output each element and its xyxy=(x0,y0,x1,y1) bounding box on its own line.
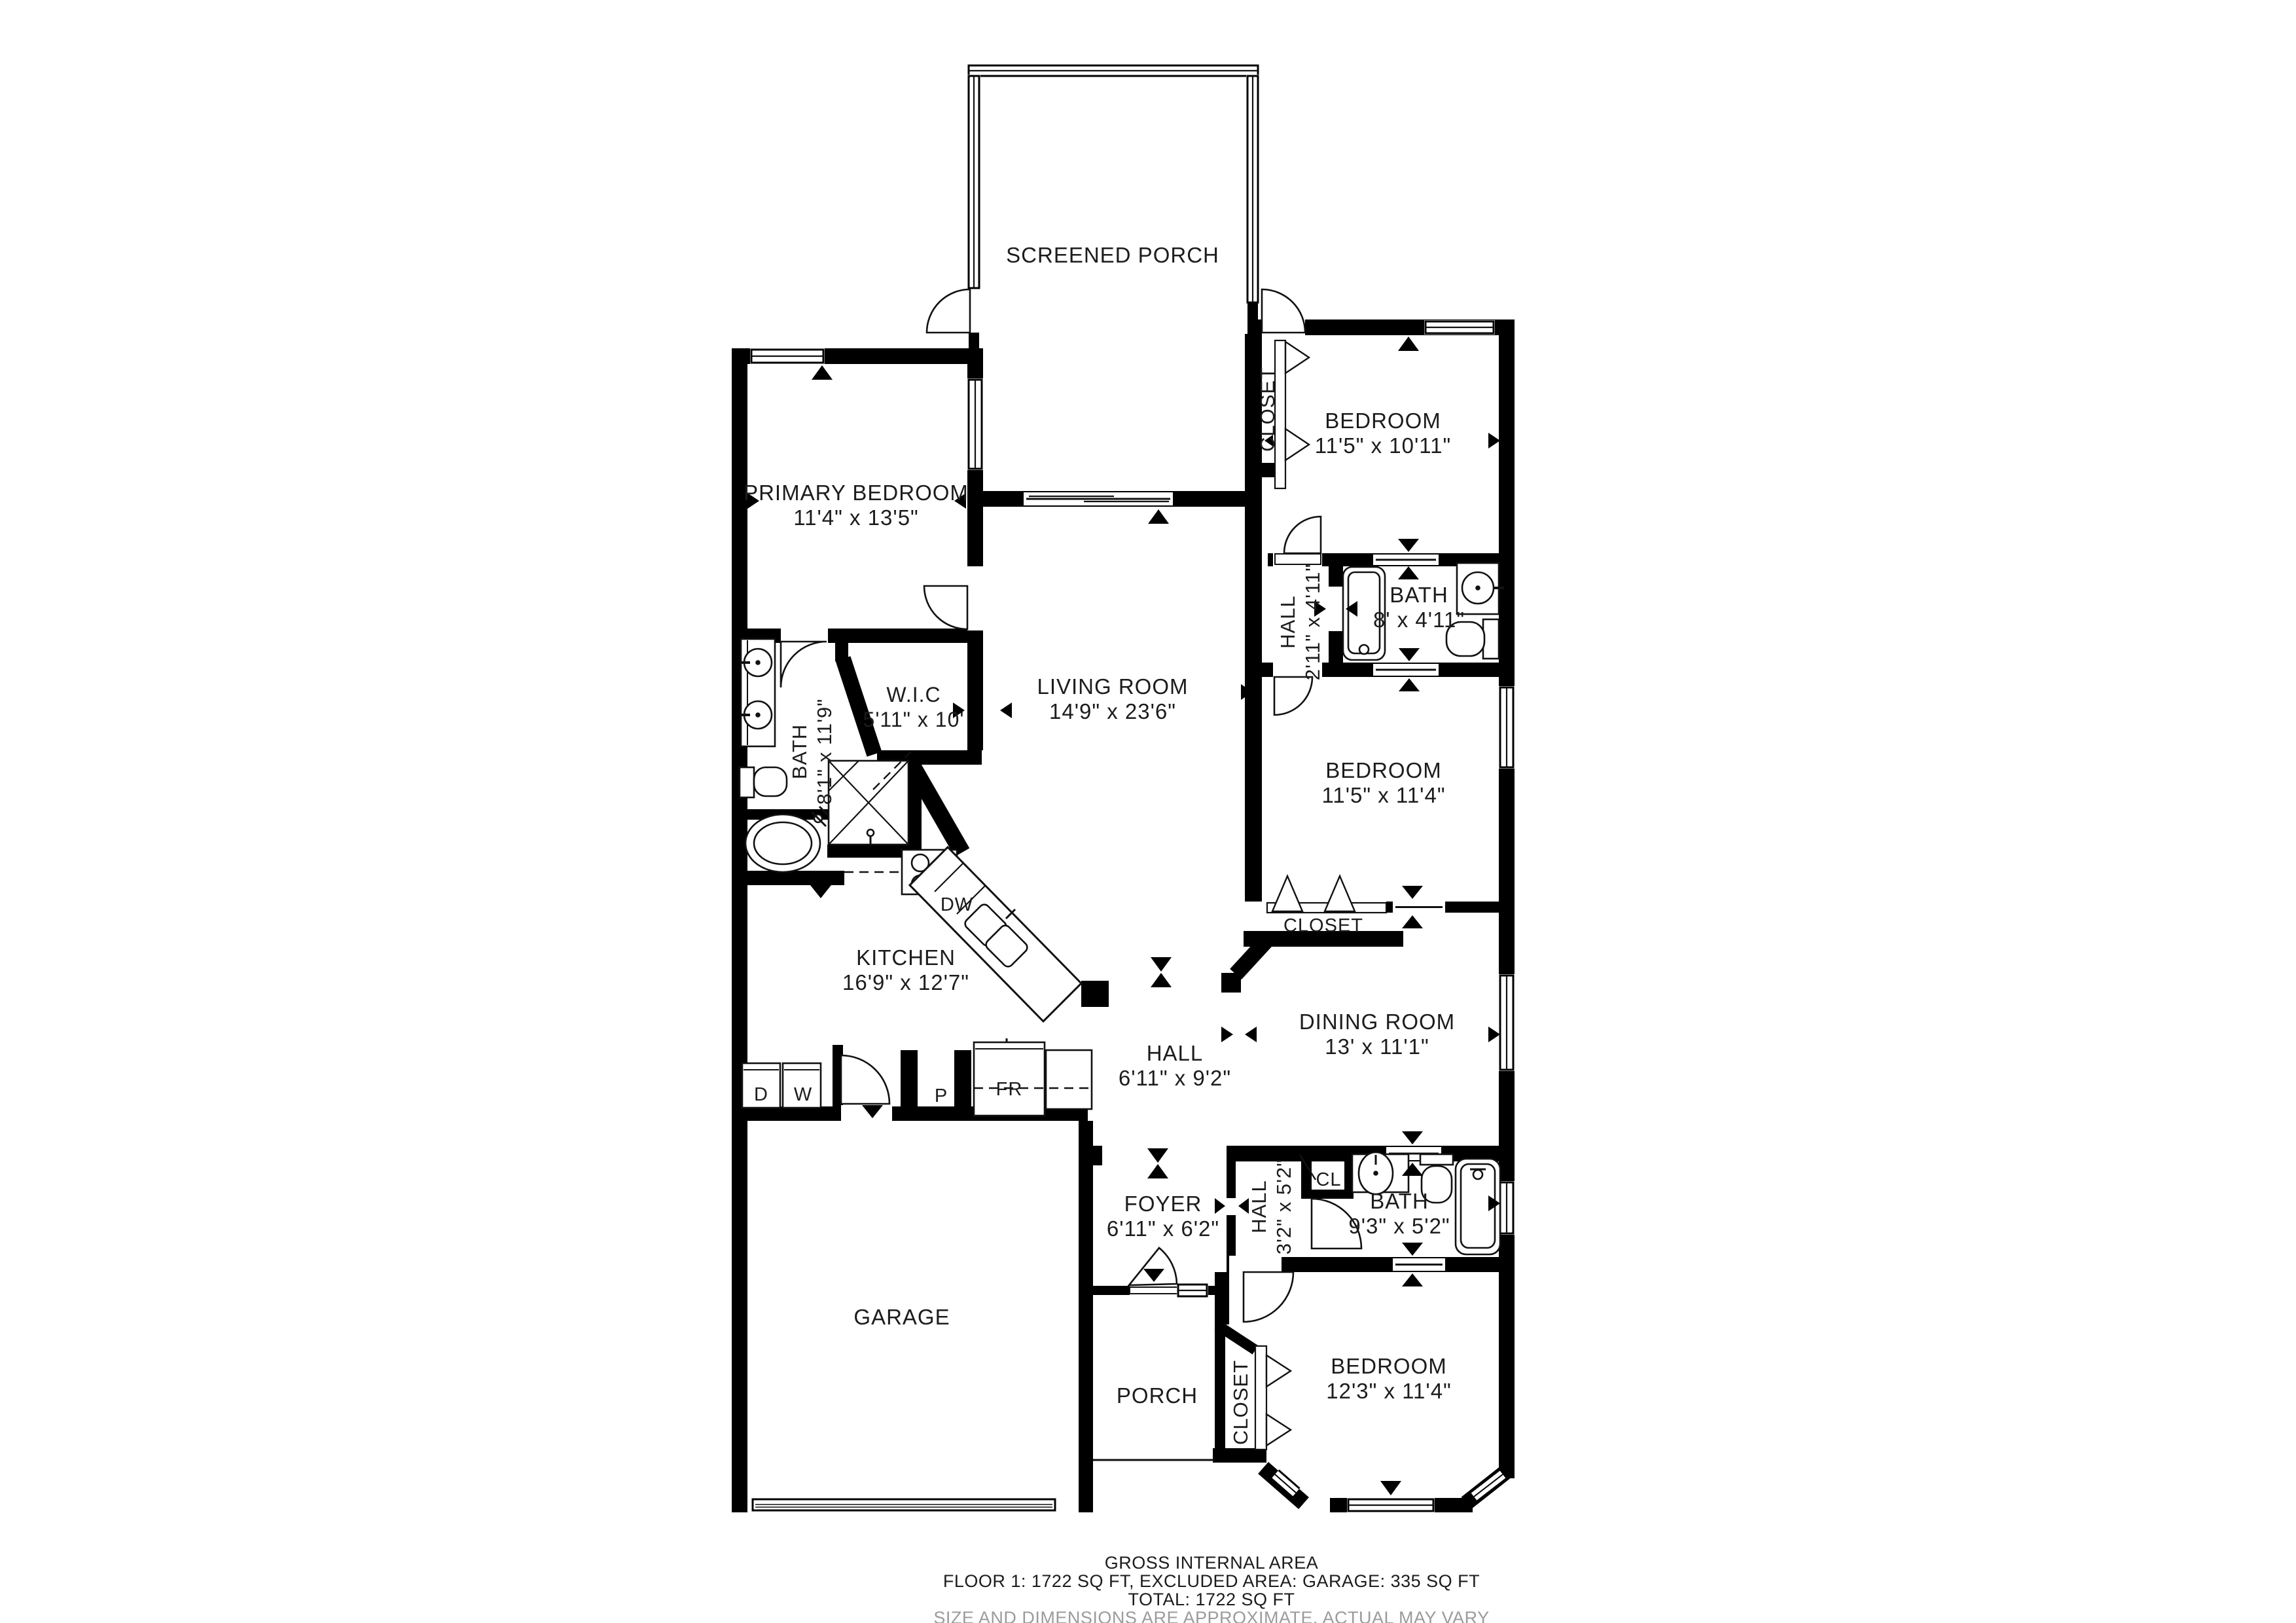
svg-text:14'9" x 23'6": 14'9" x 23'6" xyxy=(1049,699,1176,723)
svg-text:W: W xyxy=(794,1084,812,1105)
svg-text:GARAGE: GARAGE xyxy=(853,1305,950,1329)
svg-text:D: D xyxy=(754,1084,768,1105)
room-label-primary-bedroom: PRIMARY BEDROOM11'4" x 13'5" xyxy=(744,481,969,530)
svg-text:BATH: BATH xyxy=(1370,1189,1429,1213)
svg-text:11'5" x 11'4": 11'5" x 11'4" xyxy=(1321,783,1445,807)
svg-text:3'2" x 5'2": 3'2" x 5'2" xyxy=(1272,1159,1295,1255)
svg-text:BEDROOM: BEDROOM xyxy=(1325,409,1441,433)
svg-text:FR: FR xyxy=(996,1079,1023,1100)
floor-plan-drawing: SCREENED PORCHPRIMARY BEDROOM11'4" x 13'… xyxy=(0,0,2296,1623)
room-label-primary-bath: BATH8'1" x 11'9" xyxy=(788,699,836,805)
svg-text:8'1" x 11'9": 8'1" x 11'9" xyxy=(813,699,836,805)
room-label-closet-cl: CL xyxy=(1316,1169,1341,1190)
svg-text:FOYER: FOYER xyxy=(1124,1192,1202,1216)
svg-text:5'11" x 10': 5'11" x 10' xyxy=(863,708,965,731)
svg-text:BATH: BATH xyxy=(788,724,811,779)
room-label-pantry: P xyxy=(935,1085,948,1106)
room-label-hall-center: HALL6'11" x 9'2" xyxy=(1119,1041,1231,1090)
svg-text:6'11" x 6'2": 6'11" x 6'2" xyxy=(1107,1216,1219,1241)
room-label-screened-porch: SCREENED PORCH xyxy=(1006,243,1219,267)
svg-text:HALL: HALL xyxy=(1147,1041,1204,1065)
svg-text:11'4" x 13'5": 11'4" x 13'5" xyxy=(793,505,919,530)
svg-text:BATH: BATH xyxy=(1390,583,1448,607)
footer-total-area: TOTAL: 1722 SQ FT xyxy=(1128,1590,1295,1610)
footer-disclaimer: SIZE AND DIMENSIONS ARE APPROXIMATE, ACT… xyxy=(933,1608,1489,1623)
svg-text:CLOSET: CLOSET xyxy=(1283,915,1363,936)
floor-plan-page: SCREENED PORCHPRIMARY BEDROOM11'4" x 13'… xyxy=(0,0,2296,1623)
room-label-dining-room: DINING ROOM13' x 11'1" xyxy=(1299,1010,1455,1059)
svg-text:2'11" x 4'11": 2'11" x 4'11" xyxy=(1301,564,1324,680)
svg-text:12'3" x 11'4": 12'3" x 11'4" xyxy=(1326,1379,1452,1403)
room-label-bedroom-mid-right: BEDROOM11'5" x 11'4" xyxy=(1321,758,1445,807)
svg-text:KITCHEN: KITCHEN xyxy=(856,945,956,970)
room-label-garage: GARAGE xyxy=(853,1305,950,1329)
room-label-kitchen: KITCHEN16'9" x 12'7" xyxy=(842,945,969,994)
room-label-appliance-washer: W xyxy=(794,1084,812,1105)
svg-text:9'3" x 5'2": 9'3" x 5'2" xyxy=(1348,1214,1450,1238)
room-label-bath-top-right: BATH8' x 4'11" xyxy=(1373,583,1465,632)
svg-text:BEDROOM: BEDROOM xyxy=(1331,1354,1447,1378)
svg-text:11'5" x 10'11": 11'5" x 10'11" xyxy=(1315,433,1451,458)
svg-text:DINING ROOM: DINING ROOM xyxy=(1299,1010,1455,1034)
footer-gross-area: GROSS INTERNAL AREA xyxy=(1105,1553,1319,1573)
room-label-bedroom-bottom: BEDROOM12'3" x 11'4" xyxy=(1326,1354,1452,1403)
svg-text:HALL: HALL xyxy=(1247,1180,1270,1233)
room-label-hall-lower: HALL3'2" x 5'2" xyxy=(1247,1159,1295,1255)
svg-text:CLOSET: CLOSET xyxy=(1229,1360,1252,1445)
svg-text:DW: DW xyxy=(941,894,973,915)
svg-text:P: P xyxy=(935,1085,948,1106)
room-label-closet-top-right: CLOSET xyxy=(1256,367,1279,452)
svg-text:13' x 11'1": 13' x 11'1" xyxy=(1325,1034,1429,1059)
svg-text:W.I.C: W.I.C xyxy=(886,683,941,706)
room-label-closet-bottom: CLOSET xyxy=(1229,1360,1252,1445)
room-label-porch: PORCH xyxy=(1117,1383,1198,1408)
svg-text:LIVING ROOM: LIVING ROOM xyxy=(1037,674,1188,699)
room-label-wic: W.I.C5'11" x 10' xyxy=(863,683,965,731)
svg-text:16'9" x 12'7": 16'9" x 12'7" xyxy=(842,970,969,994)
room-label-bedroom-top-right: BEDROOM11'5" x 10'11" xyxy=(1315,409,1451,458)
room-label-appliance-dryer: D xyxy=(754,1084,768,1105)
svg-text:CLOSET: CLOSET xyxy=(1256,367,1279,452)
svg-text:PRIMARY BEDROOM: PRIMARY BEDROOM xyxy=(744,481,969,505)
svg-text:HALL: HALL xyxy=(1276,595,1299,649)
room-label-foyer: FOYER6'11" x 6'2" xyxy=(1107,1192,1219,1241)
room-label-closet-mid-right: CLOSET xyxy=(1283,915,1363,936)
room-label-fridge: FR xyxy=(996,1079,1023,1100)
svg-text:8' x 4'11": 8' x 4'11" xyxy=(1373,608,1465,632)
room-label-dishwasher: DW xyxy=(941,894,973,915)
svg-text:BEDROOM: BEDROOM xyxy=(1325,758,1442,782)
svg-text:6'11" x 9'2": 6'11" x 9'2" xyxy=(1119,1066,1231,1090)
svg-text:CL: CL xyxy=(1316,1169,1341,1190)
svg-text:SCREENED PORCH: SCREENED PORCH xyxy=(1006,243,1219,267)
footer-floor-area: FLOOR 1: 1722 SQ FT, EXCLUDED AREA: GARA… xyxy=(943,1571,1480,1592)
svg-text:PORCH: PORCH xyxy=(1117,1383,1198,1408)
room-label-living-room: LIVING ROOM14'9" x 23'6" xyxy=(1037,674,1188,723)
